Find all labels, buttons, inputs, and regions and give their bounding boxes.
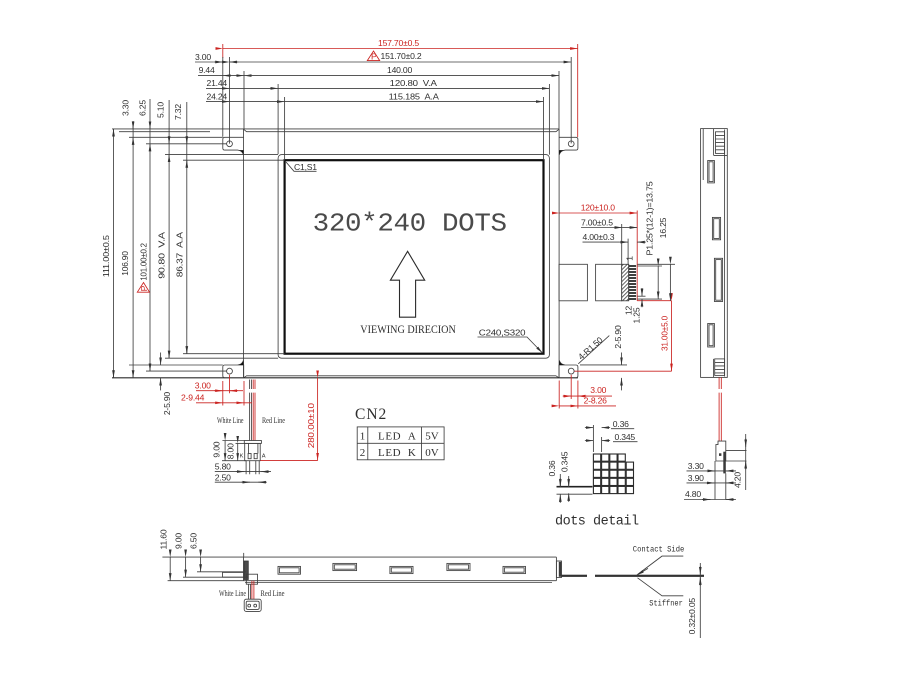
svg-text:3.00: 3.00 <box>195 52 211 62</box>
svg-text:8.00: 8.00 <box>226 443 236 459</box>
svg-text:4.00±0.3: 4.00±0.3 <box>583 232 615 242</box>
svg-text:120±10.0: 120±10.0 <box>581 203 616 213</box>
svg-text:5.10: 5.10 <box>155 102 165 118</box>
svg-text:White Line: White Line <box>217 416 244 425</box>
svg-text:0.36: 0.36 <box>613 419 629 429</box>
svg-text:7.00±0.5: 7.00±0.5 <box>581 217 613 227</box>
svg-text:White Line: White Line <box>219 589 246 598</box>
svg-text:151.70±0.2: 151.70±0.2 <box>381 51 422 61</box>
svg-text:2-5.90: 2-5.90 <box>613 325 623 349</box>
svg-text:2-5.90: 2-5.90 <box>162 392 172 416</box>
svg-text:9.00: 9.00 <box>212 441 222 457</box>
svg-text:9.44: 9.44 <box>199 65 215 75</box>
svg-text:16.25: 16.25 <box>658 217 668 238</box>
svg-text:0.345: 0.345 <box>615 432 636 442</box>
svg-text:3.00: 3.00 <box>590 385 606 395</box>
svg-text:Stiffner: Stiffner <box>649 599 683 608</box>
svg-text:24.24: 24.24 <box>207 91 228 101</box>
svg-text:2: 2 <box>360 447 366 459</box>
svg-text:LED A: LED A <box>378 431 416 443</box>
svg-text:6.25: 6.25 <box>138 100 148 116</box>
svg-text:3.90: 3.90 <box>688 473 704 483</box>
svg-text:5V: 5V <box>425 431 439 443</box>
svg-text:86.37 A.A: 86.37 A.A <box>175 232 185 278</box>
svg-text:K: K <box>240 454 244 460</box>
svg-text:3.00: 3.00 <box>195 380 211 390</box>
svg-text:1: 1 <box>360 431 366 443</box>
svg-text:Contact Side: Contact Side <box>633 545 685 554</box>
svg-text:2-9.44: 2-9.44 <box>181 392 205 402</box>
svg-text:Red Line: Red Line <box>261 589 285 598</box>
svg-text:280.00±10: 280.00±10 <box>306 403 316 448</box>
svg-text:5.80: 5.80 <box>215 461 231 471</box>
svg-text:120.80 V.A: 120.80 V.A <box>390 78 438 88</box>
svg-text:31.00±5.0: 31.00±5.0 <box>660 316 670 351</box>
svg-text:0V: 0V <box>425 447 439 459</box>
svg-text:A: A <box>262 454 266 460</box>
svg-text:Red Line: Red Line <box>262 416 285 425</box>
svg-text:LED K: LED K <box>378 447 416 459</box>
svg-text:C1,S1: C1,S1 <box>294 162 317 172</box>
svg-text:3.30: 3.30 <box>688 461 704 471</box>
svg-text:0.345: 0.345 <box>560 451 570 472</box>
svg-text:C240,S320: C240,S320 <box>479 327 526 337</box>
svg-text:VIEWING DIRECION: VIEWING DIRECION <box>360 324 456 336</box>
svg-text:P: P <box>139 285 149 291</box>
svg-text:CN2: CN2 <box>355 406 387 423</box>
svg-text:6.50: 6.50 <box>188 533 198 549</box>
svg-text:0.32±0.05: 0.32±0.05 <box>687 598 697 635</box>
svg-text:1.25: 1.25 <box>631 307 641 323</box>
svg-text:P: P <box>371 52 377 62</box>
svg-text:101.00±0.2: 101.00±0.2 <box>138 243 148 281</box>
svg-text:1: 1 <box>625 256 635 261</box>
svg-text:106.90: 106.90 <box>120 251 130 276</box>
svg-text:9.00: 9.00 <box>173 533 183 549</box>
svg-text:157.70±0.5: 157.70±0.5 <box>378 38 419 48</box>
svg-text:7.32: 7.32 <box>173 104 183 120</box>
svg-text:4.20: 4.20 <box>733 472 743 488</box>
svg-text:140.00: 140.00 <box>387 65 413 75</box>
svg-text:111.00±0.5: 111.00±0.5 <box>101 235 111 277</box>
svg-text:3.30: 3.30 <box>121 100 131 116</box>
svg-text:115.185 A.A: 115.185 A.A <box>389 91 439 101</box>
svg-text:dots detail: dots detail <box>555 515 639 530</box>
svg-text:0.36: 0.36 <box>547 460 557 476</box>
svg-text:90.80 V.A: 90.80 V.A <box>157 232 167 279</box>
svg-text:P1.25*(12-1)=13.75: P1.25*(12-1)=13.75 <box>645 181 655 255</box>
svg-text:21.44: 21.44 <box>207 78 228 88</box>
svg-text:4.80: 4.80 <box>685 489 701 499</box>
svg-text:2-8.26: 2-8.26 <box>584 395 608 405</box>
svg-text:11.60: 11.60 <box>158 529 168 549</box>
svg-text:2.50: 2.50 <box>215 472 231 482</box>
svg-text:320*240 DOTS: 320*240 DOTS <box>313 210 507 239</box>
